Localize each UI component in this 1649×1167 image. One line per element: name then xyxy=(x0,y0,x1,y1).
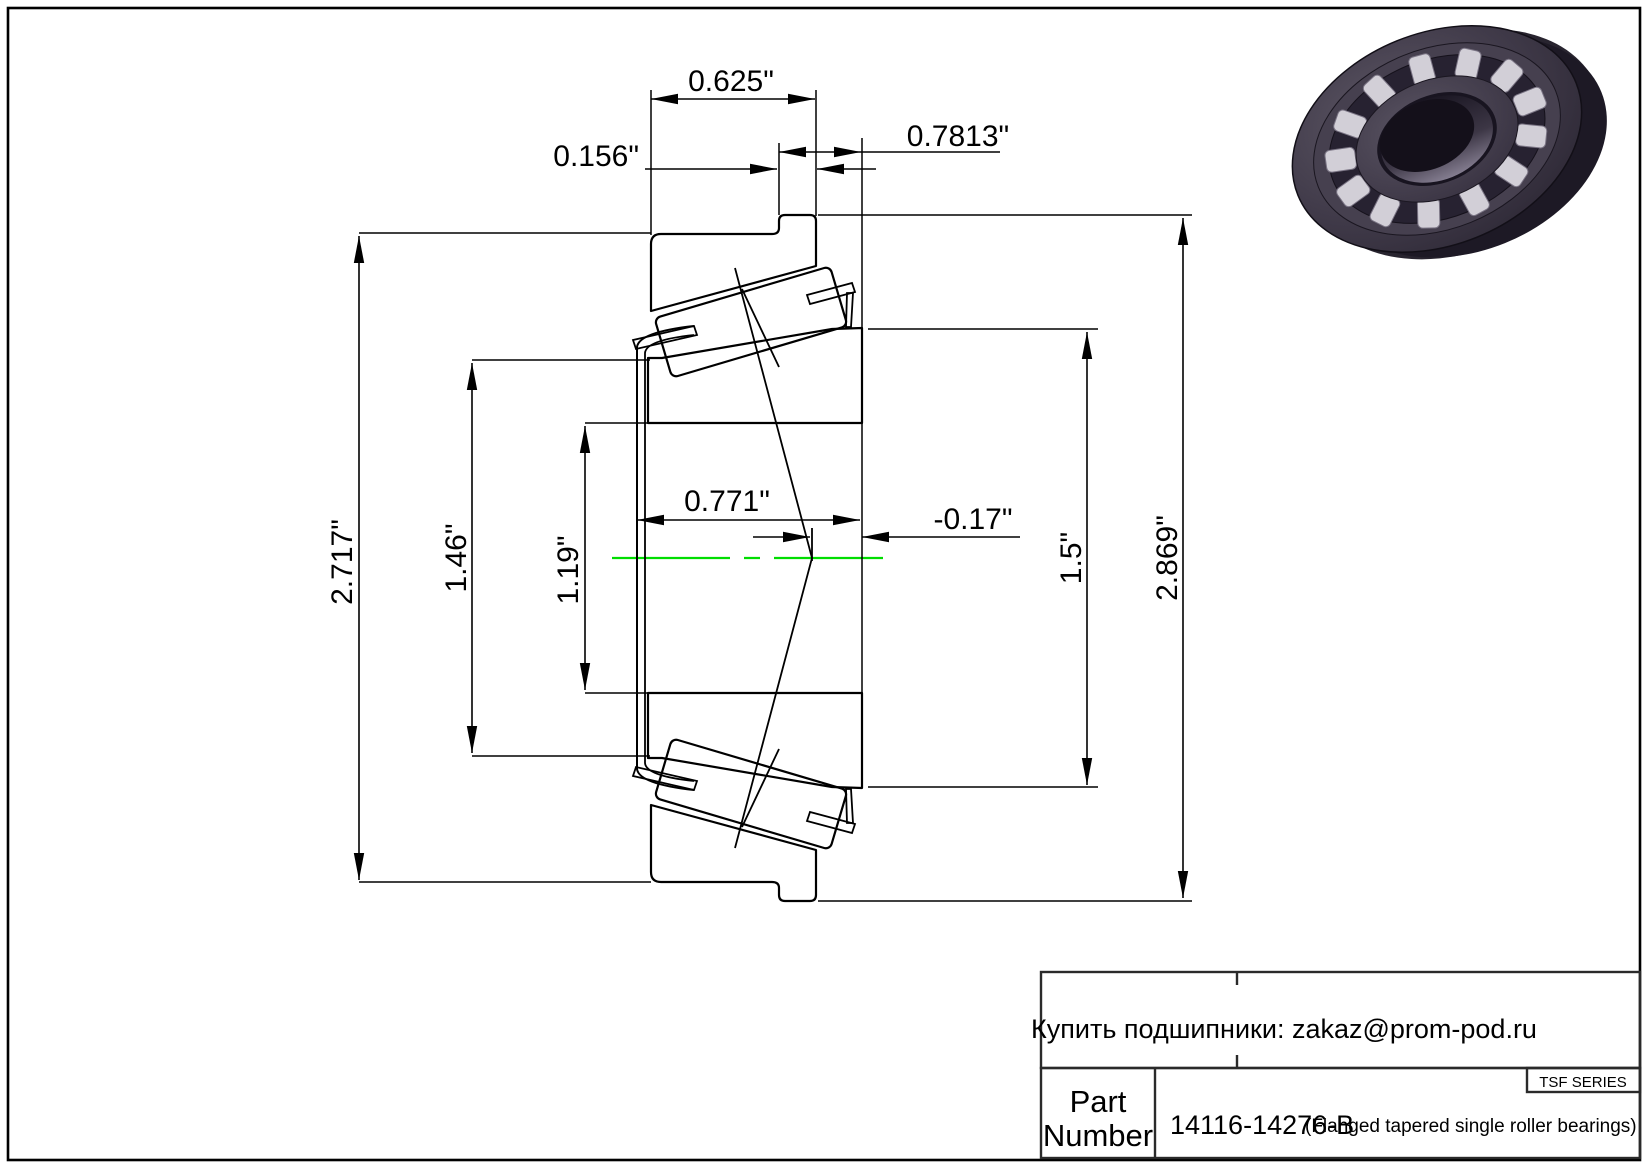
dim-overall-width-label: 0.7813" xyxy=(907,120,1009,153)
dim-load-center-label: -0.17" xyxy=(933,503,1012,536)
dim-cage-od-label: 1.46" xyxy=(440,523,473,592)
dim-cup-width-label: 0.625" xyxy=(688,65,774,98)
cage-strip-bottom-left xyxy=(633,767,697,790)
cage-lip-top xyxy=(846,293,853,327)
part-label-line2: Number xyxy=(1043,1118,1153,1153)
cage-strip-top-left xyxy=(633,326,697,349)
dim-rib-od-label: 1.5" xyxy=(1055,532,1088,584)
engineering-drawing-canvas: 0.625" 0.156" 0.7813" 0.771" -0.17" 2.71… xyxy=(0,0,1649,1167)
contact-text: Купить подшипники: zakaz@prom-pod.ru xyxy=(1031,1014,1537,1044)
dim-flange-width-label: 0.156" xyxy=(553,140,639,173)
cup-section-bottom xyxy=(651,805,816,901)
dim-cone-width-label: 0.771" xyxy=(684,485,770,518)
dim-bore-label: 1.19" xyxy=(552,535,585,604)
bearing-cross-section xyxy=(612,215,883,901)
part-description: (Flanged tapered single roller bearings) xyxy=(1305,1116,1637,1137)
part-label-line1: Part xyxy=(1070,1084,1127,1119)
title-block: Купить подшипники: zakaz@prom-pod.ru TSF… xyxy=(1031,972,1640,1158)
dim-flange-od-label: 2.869" xyxy=(1151,515,1184,601)
series-label: TSF SERIES xyxy=(1539,1074,1627,1091)
dim-cup-od-label: 2.717" xyxy=(326,519,359,605)
bearing-3d-render xyxy=(1258,0,1640,308)
cage-lip-bottom xyxy=(846,789,853,823)
cup-section-top xyxy=(651,215,816,311)
drawing-sheet: 0.625" 0.156" 0.7813" 0.771" -0.17" 2.71… xyxy=(0,0,1649,1167)
